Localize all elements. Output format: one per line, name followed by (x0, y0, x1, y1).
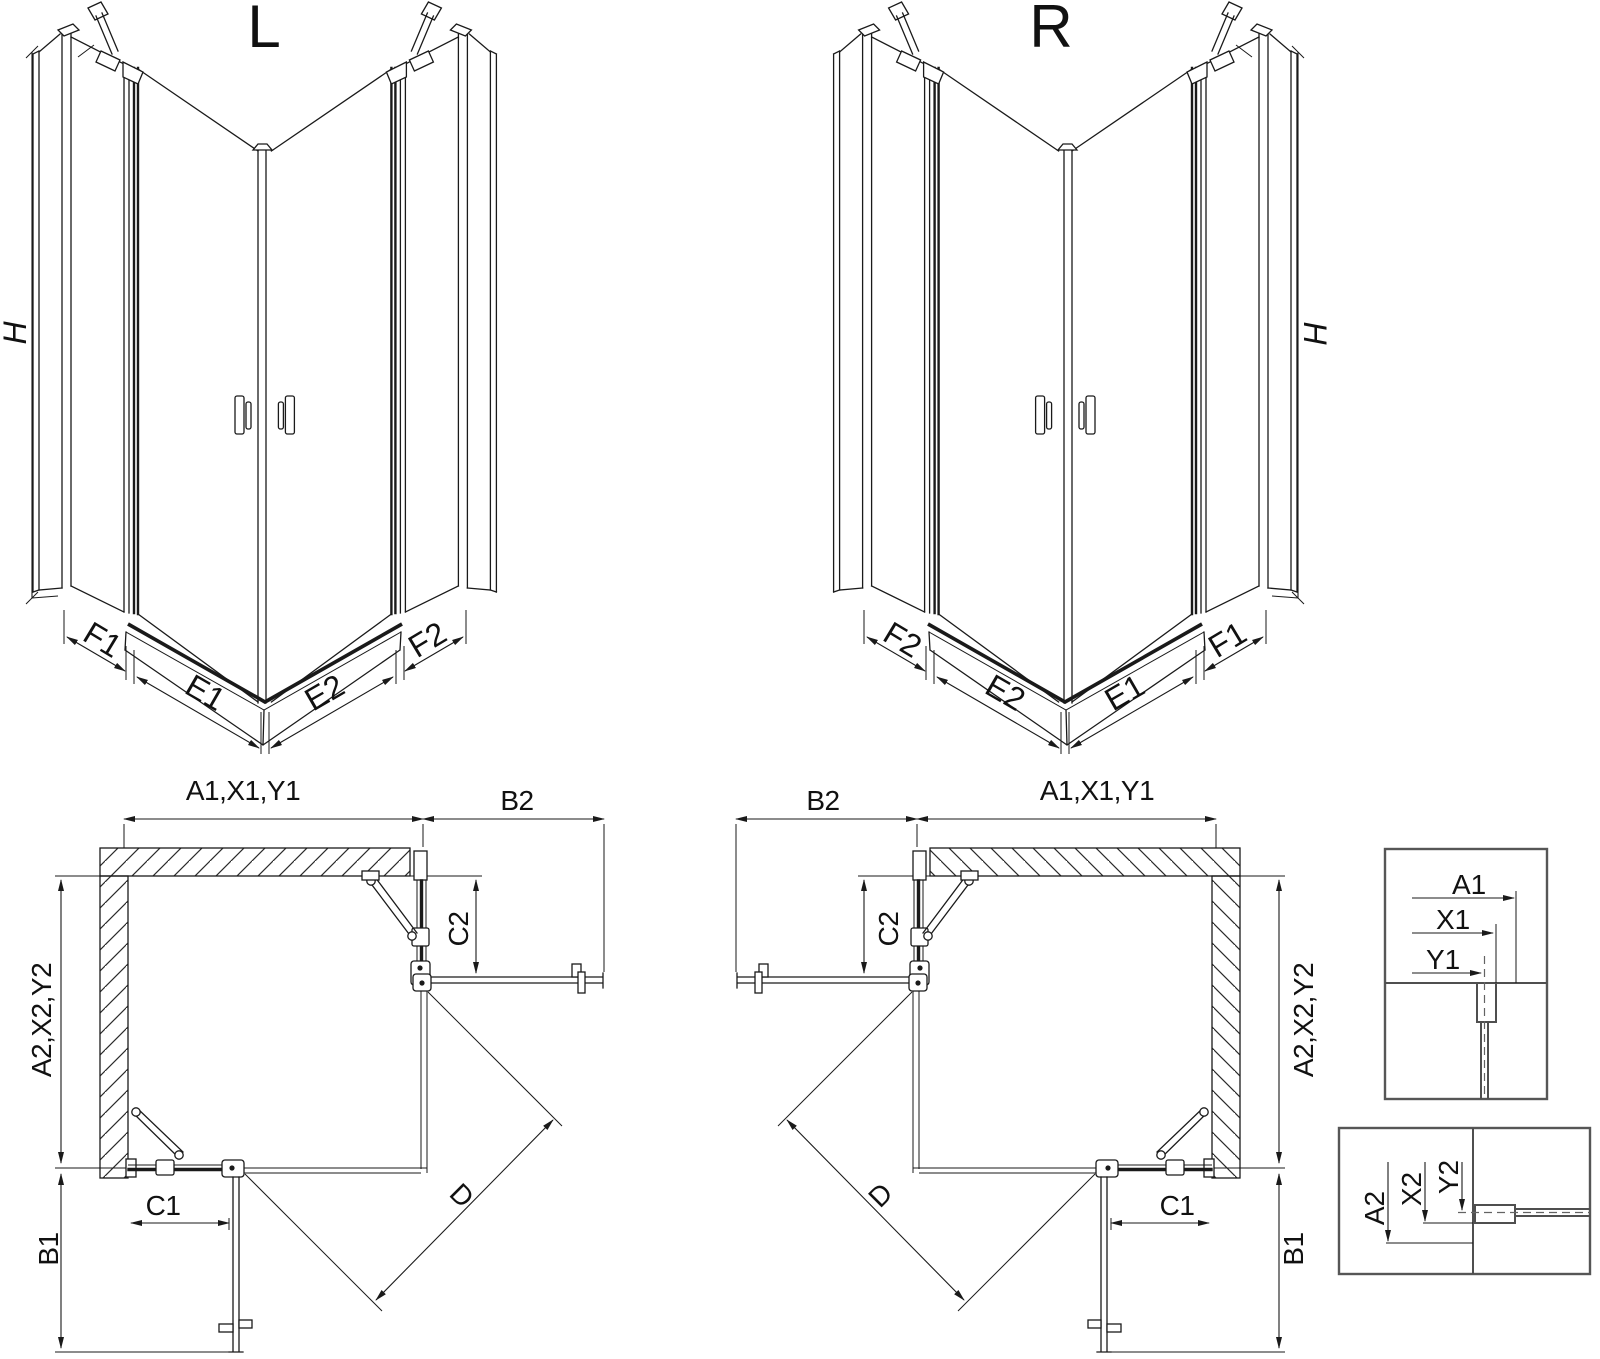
iso-right-height-label: H (1297, 321, 1333, 345)
plan-right-depth-label: A2,X2,Y2 (1288, 963, 1319, 1077)
iso-left-f1-label: F1 (77, 615, 128, 665)
plan-left-depth-label: A2,X2,Y2 (26, 963, 57, 1077)
plan-left-c2-label: C2 (443, 912, 474, 947)
plan-right-geometry (736, 819, 1285, 1352)
detail-y1-label: Y1 (1426, 944, 1460, 975)
iso-right-title: R (1029, 0, 1072, 60)
plan-view-left: A1,X1,Y1 B2 C2 A2,X2,Y2 C1 B1 D (26, 775, 604, 1352)
plan-left-b1-label: B1 (33, 1232, 64, 1265)
plan-view-right: A1,X1,Y1 B2 C2 A2,X2,Y2 C1 B1 D (736, 775, 1319, 1352)
iso-right-f1-label: F1 (1202, 615, 1253, 665)
plan-right-width-label: A1,X1,Y1 (1040, 775, 1154, 806)
iso-view-right: R H F2 E2 E1 F1 (834, 0, 1333, 754)
iso-right-e1-label: E1 (1099, 667, 1151, 718)
plan-right-b2-label: B2 (806, 785, 839, 816)
technical-drawing-sheet: L H F1 E1 E2 F2 R H F2 E2 E1 F1 A1,X1,Y1… (0, 0, 1600, 1359)
iso-left-e2-label: E2 (299, 667, 351, 718)
plan-left-geometry (55, 819, 604, 1352)
plan-left-d-label: D (444, 1177, 480, 1213)
iso-view-left: L H F1 E1 E2 F2 (0, 0, 496, 754)
detail-vertical-section: A1 X1 Y1 (1385, 849, 1547, 1099)
iso-right-f2-label: F2 (877, 615, 928, 665)
detail-x1-label: X1 (1436, 904, 1470, 935)
iso-left-e1-label: E1 (180, 667, 232, 718)
detail-x2-label: X2 (1396, 1172, 1427, 1206)
shower-enclosure-diagram: L H F1 E1 E2 F2 R H F2 E2 E1 F1 A1,X1,Y1… (0, 0, 1600, 1359)
plan-left-b2-label: B2 (500, 785, 533, 816)
iso-left-f2-label: F2 (402, 615, 453, 665)
plan-left-width-label: A1,X1,Y1 (186, 775, 300, 806)
plan-right-c1-label: C1 (1160, 1190, 1195, 1221)
plan-right-c2-label: C2 (873, 912, 904, 947)
plan-left-c1-label: C1 (146, 1190, 181, 1221)
iso-left-height-label: H (0, 321, 33, 345)
iso-right-e2-label: E2 (980, 667, 1032, 718)
detail-a2-label: A2 (1359, 1191, 1390, 1225)
detail-y2-label: Y2 (1433, 1160, 1464, 1194)
detail-a1-label: A1 (1452, 869, 1486, 900)
plan-right-d-label: D (862, 1177, 898, 1213)
plan-right-b1-label: B1 (1278, 1232, 1309, 1265)
iso-left-title: L (247, 0, 280, 60)
detail-horizontal-section: A2 X2 Y2 (1339, 1128, 1590, 1274)
